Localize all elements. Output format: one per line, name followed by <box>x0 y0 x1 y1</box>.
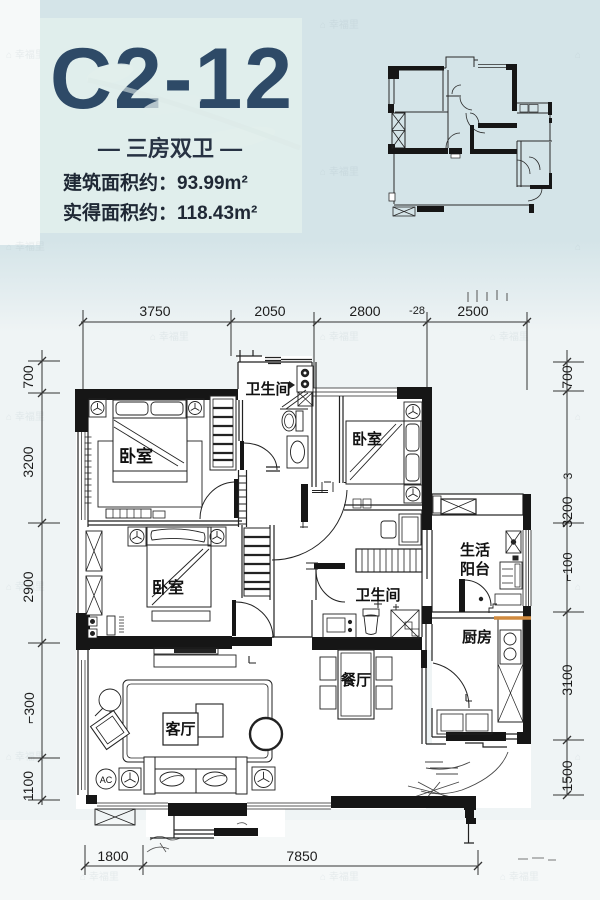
svg-text:⌂ 幸福里: ⌂ 幸福里 <box>6 410 45 423</box>
svg-text:⌂ 幸福里: ⌂ 幸福里 <box>490 330 529 343</box>
svg-text:— 三房双卫 —: — 三房双卫 — <box>98 136 242 161</box>
svg-text:3750: 3750 <box>139 303 170 319</box>
svg-text:⌂ 幸福里: ⌂ 幸福里 <box>320 870 359 883</box>
svg-text:餐厅: 餐厅 <box>341 671 371 689</box>
svg-text:1500: 1500 <box>559 760 575 791</box>
svg-text:厨房: 厨房 <box>462 628 492 646</box>
svg-text:卧室: 卧室 <box>119 446 153 466</box>
svg-text:卫生间: 卫生间 <box>355 586 400 604</box>
svg-text:客厅: 客厅 <box>164 720 195 738</box>
svg-text:2500: 2500 <box>457 303 488 319</box>
svg-text:⌐100: ⌐100 <box>560 552 575 581</box>
svg-text:⌂: ⌂ <box>575 412 581 423</box>
svg-text:卧室: 卧室 <box>352 430 382 448</box>
svg-text:⌂ 幸福里: ⌂ 幸福里 <box>6 240 45 253</box>
svg-text:⌂ 幸福里: ⌂ 幸福里 <box>320 18 359 31</box>
svg-text:700: 700 <box>559 365 575 389</box>
svg-text:卫生间: 卫生间 <box>245 380 290 398</box>
svg-text:700: 700 <box>20 365 36 389</box>
svg-text:卧室: 卧室 <box>152 578 184 597</box>
svg-text:3: 3 <box>561 472 575 479</box>
svg-text:⌂: ⌂ <box>575 50 581 61</box>
svg-text:⌂: ⌂ <box>575 752 581 763</box>
svg-text:⌂: ⌂ <box>575 242 581 253</box>
svg-text:⌂ 幸福里: ⌂ 幸福里 <box>320 165 359 178</box>
svg-text:2800: 2800 <box>349 303 380 319</box>
svg-text:⌂: ⌂ <box>575 582 581 593</box>
svg-text:⌂ 幸福里: ⌂ 幸福里 <box>320 330 359 343</box>
svg-text:⌂ 幸福里: ⌂ 幸福里 <box>80 870 119 883</box>
svg-text:2050: 2050 <box>254 303 285 319</box>
svg-text:阳台: 阳台 <box>460 560 490 578</box>
svg-text:⌂ 幸福里: ⌂ 幸福里 <box>150 330 189 343</box>
svg-text:3200: 3200 <box>20 446 36 477</box>
svg-text:生活: 生活 <box>460 541 490 559</box>
svg-text:AC: AC <box>100 775 113 785</box>
svg-text:⌂ 幸福里: ⌂ 幸福里 <box>6 48 45 61</box>
svg-text:实得面积约：118.43m²: 实得面积约：118.43m² <box>63 201 257 224</box>
svg-text:2900: 2900 <box>20 571 36 602</box>
svg-text:-28: -28 <box>409 305 425 317</box>
svg-text:3200: 3200 <box>559 496 575 527</box>
svg-text:建筑面积约：93.99m²: 建筑面积约：93.99m² <box>63 171 248 194</box>
svg-text:1100: 1100 <box>20 771 36 801</box>
svg-text:3100: 3100 <box>559 664 575 695</box>
svg-text:1800: 1800 <box>97 848 128 864</box>
svg-text:⌐300: ⌐300 <box>21 692 37 724</box>
svg-text:⌂ 幸福里: ⌂ 幸福里 <box>500 870 539 883</box>
svg-text:7850: 7850 <box>286 848 317 864</box>
